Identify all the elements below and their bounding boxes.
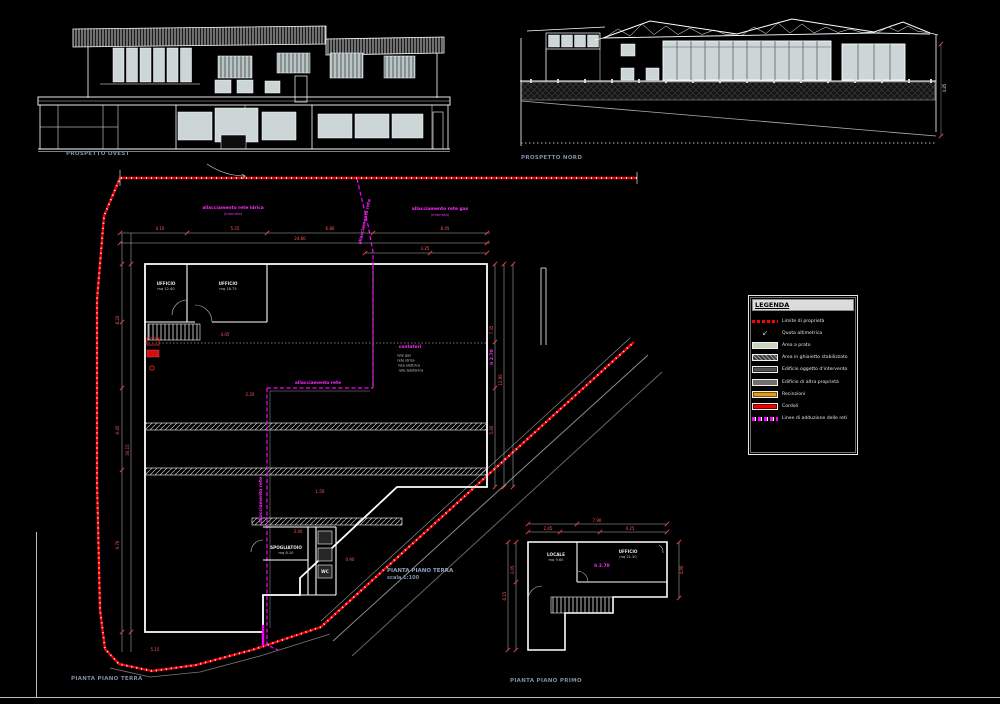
legend-item-label: Cordoli [782,404,798,409]
room-label: LOCALE [547,553,565,557]
elevation-west-label: PROSPETTO OVEST [66,151,130,157]
roomsub-label: mq 9.60 [549,559,564,563]
dim-label: 4.90 [680,566,684,575]
magsub-label: (interrata) [224,213,242,217]
dim-label: 5.25 [231,227,240,231]
legend-rows: Limite di proprietà ↙ Quota altimetrica … [749,313,857,427]
room-label: WC [321,570,329,574]
mag-label: contatori [399,346,422,350]
dim-label: 1.50 [316,490,325,494]
mag-label: allacciamento rete gas [412,208,468,212]
legend-item-curbs: Cordoli [752,400,854,412]
dim-label: 7.35 [490,326,494,335]
dim-label: 8.45 [441,227,450,231]
legend-item-intervention-building: Edificio oggetto d'intervento [752,364,854,376]
dim-label: 2.20 [246,393,255,397]
dim-label: 9.70 [116,541,120,550]
ground-plan-title: PIANTA PIANO TERRA scala 1:100 [387,568,453,581]
mag-label: h 2.70 [491,349,495,365]
dim-label: 4.25 [626,527,635,531]
roomsub-label: mq 12.40 [157,288,174,292]
room-label: SPOGLIATOIO [270,546,302,550]
mag-label: allacciamento rete [295,382,341,386]
legend-item-label: Edificio oggetto d'intervento [782,367,847,372]
dim-label: 6.45 [116,426,120,435]
dim-label: 0.90 [346,558,355,562]
note-label: rete gas [397,354,411,357]
roomsub-label: mq 21.30 [619,556,636,560]
cad-sheet: N PROSPETTO OVEST PROSPETTO NORD PIANTA … [0,0,1000,704]
dim-label: 6.80 [326,227,335,231]
curbs-swatch [752,403,778,410]
dim-label: 12.95 [499,374,503,385]
legend-item-label: Linee di adduzione delle reti [782,416,847,421]
elevation-point-icon: ↙ [752,330,778,337]
roomsub-label: mq 8.10 [279,552,294,556]
intervention-building-swatch [752,366,778,373]
fences-swatch [752,391,778,398]
room-label: UFFICIO [619,550,638,554]
dim-label: 7.90 [593,519,602,523]
dim-label: 30.15 [126,444,130,455]
legend-item-label: Edificio di altra proprietà [782,380,839,385]
dim-label: 5.60 [490,426,494,435]
legend-title: LEGENDA [752,299,854,311]
dim-label: 2.45 [544,527,553,531]
legend-item-label: Area in ghiaietto stabilizzato [782,355,848,360]
mag-label: h 2.70 [594,565,610,569]
dim-label: 3.40 [294,530,303,534]
dim-label: 24.60 [294,237,305,241]
mag-label: allacciamento rete idrica [202,207,264,211]
elevation-west [38,26,450,152]
legend-box: LEGENDA Limite di proprietà ↙ Quota alti… [748,295,858,455]
legend-item-label: Limite di proprietà [782,319,824,324]
sheet-border-left [36,532,37,697]
elevation-north [520,19,943,146]
sheet-border-bottom [0,697,1000,698]
magv-label: allacciamento rete [260,477,264,523]
legend-item-other-building: Edificio di altra proprietà [752,376,854,388]
grass-area-swatch [752,342,778,349]
first-plan-corner-label: PIANTA PIANO PRIMO [510,678,582,684]
property-limit-swatch [752,320,778,323]
elevation-north-label: PROSPETTO NORD [521,155,582,161]
roomsub-label: mq 18.75 [219,288,236,292]
other-building-swatch [752,379,778,386]
room-label: UFFICIO [157,282,176,286]
magsub-label: (interrata) [431,214,449,218]
utility-lines-swatch [752,417,778,421]
legend-item-fences: Recinzioni [752,388,854,400]
legend-item-gravel-area: Area in ghiaietto stabilizzato [752,352,854,364]
dim-label: 3.25 [421,247,430,251]
ground-plan-corner-label: PIANTA PIANO TERRA [71,676,143,682]
dim-label: 5.15 [151,648,160,652]
legend-item-utility-lines: Linee di adduzione delle reti [752,413,854,425]
dimw-label: 4.85 [943,84,947,93]
note-label: rete elettrica [398,364,420,367]
gravel-area-swatch [752,354,778,361]
dim-label: 4.05 [221,333,230,337]
dim-label: 4.10 [156,227,165,231]
dim-label: 8.20 [116,316,120,325]
legend-item-label: Recinzioni [782,392,805,397]
legend-item-property-limit: Limite di proprietà [752,315,854,327]
legend-item-grass-area: Area a prato [752,339,854,351]
plan-first [506,522,681,652]
ground-plan-scale: scala 1:100 [387,575,453,581]
legend-item-label: Quota altimetrica [782,331,822,336]
note-label: rete telefonica [399,369,424,372]
dim-label: 6.15 [503,592,507,601]
ground-plan-title-text: PIANTA PIANO TERRA [387,568,453,575]
room-label: UFFICIO [219,282,238,286]
legend-item-label: Area a prato [782,343,811,348]
legend-item-elevation-point: ↙ Quota altimetrica [752,327,854,339]
dim-label: 3.05 [511,566,515,575]
note-label: rete idrica [397,359,414,362]
